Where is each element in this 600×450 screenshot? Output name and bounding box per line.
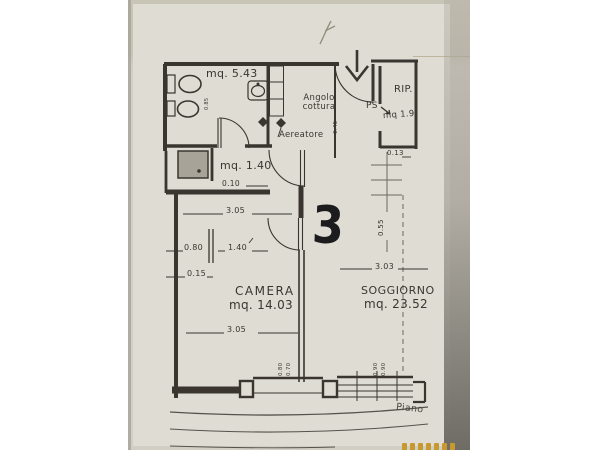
dim-305-bottom: 3.05	[227, 326, 246, 335]
room-label-kitchen: Angolo cottura	[297, 94, 341, 113]
balcony-lines	[170, 407, 428, 448]
dim-140: 1.40	[228, 244, 247, 253]
closet-door-label: PS	[366, 102, 378, 112]
kitchen-cabinets	[269, 66, 284, 116]
plan-linework-svg	[0, 0, 600, 450]
room-label-closet: RIP.	[394, 84, 413, 95]
dim-bath-small: 0.85	[205, 98, 211, 110]
dim-balcony-door-a: 0.80	[278, 363, 284, 376]
hall-door-arc	[269, 150, 305, 187]
timestamp-fragment	[402, 443, 460, 450]
bidet-icon	[167, 101, 199, 117]
room-label-living: SOGGIORNO	[361, 285, 435, 297]
entrance-arrow-icon	[346, 50, 368, 80]
dim-055: 0.55	[378, 219, 386, 236]
area-label-living: mq. 23.52	[364, 298, 428, 311]
pencil-mark	[320, 21, 335, 44]
shaft-box	[178, 151, 208, 178]
dim-010: 0.10	[222, 180, 240, 188]
dim-window-a: 0.90	[373, 363, 379, 376]
area-label-bedroom: mq. 14.03	[229, 299, 293, 312]
dim-kitchen-small: 0.45	[333, 121, 339, 134]
sink-icon	[248, 81, 268, 100]
room-label-bedroom: CAMERA	[235, 285, 295, 298]
bathroom-door-arc	[218, 118, 249, 148]
photo-edge-shadow	[444, 0, 470, 450]
area-label-bathroom: mq. 5.43	[206, 68, 258, 80]
toilet-icon	[167, 75, 201, 93]
dim-window-b: 0.90	[381, 363, 387, 376]
dim-balcony-door-b: 0.70	[286, 363, 292, 376]
area-label-hall: mq. 1.40	[220, 160, 272, 172]
dim-305-top: 3.05	[226, 207, 245, 216]
dim-303: 3.03	[375, 263, 394, 272]
shaft-dot	[197, 169, 201, 173]
handwritten-unit-number: 3	[311, 196, 345, 254]
scanned-floorplan-page: mq. 5.43 Angolo cottura Aereatore 0.45 P…	[0, 0, 600, 450]
balcony-door-jambs	[240, 381, 337, 397]
vent-label: Aereatore	[279, 131, 323, 140]
dim-015: 0.15	[187, 270, 206, 279]
bedroom-door-arc	[268, 218, 303, 250]
dim-013: 0.13	[387, 150, 404, 158]
dim-080: 0.80	[184, 244, 203, 253]
